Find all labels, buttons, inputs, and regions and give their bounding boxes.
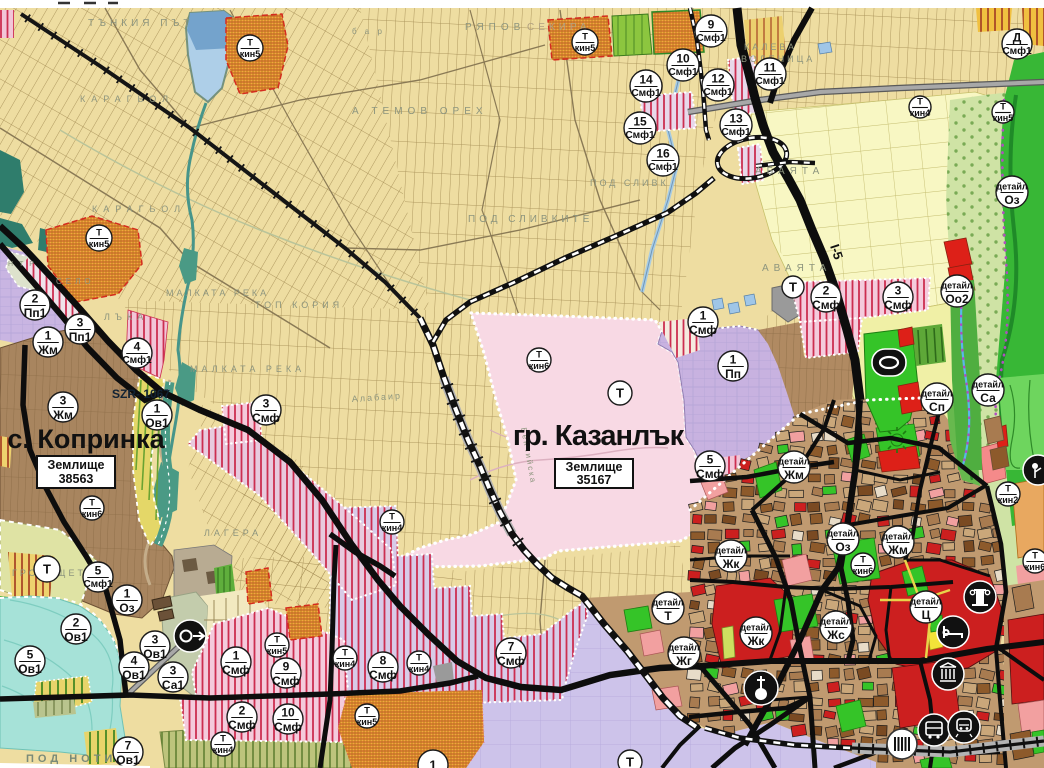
- svg-text:Смф: Смф: [252, 411, 280, 425]
- svg-text:38563: 38563: [59, 472, 94, 486]
- svg-text:кин4: кин4: [910, 108, 930, 118]
- svg-text:3: 3: [60, 394, 67, 408]
- svg-text:детайл: детайл: [910, 597, 942, 607]
- svg-text:Смф: Смф: [696, 467, 724, 481]
- svg-text:1: 1: [700, 309, 707, 323]
- svg-text:Т: Т: [89, 498, 95, 509]
- svg-text:1: 1: [154, 402, 161, 416]
- svg-text:ЛЪКА: ЛЪКА: [104, 312, 148, 322]
- svg-text:б а р: б а р: [352, 27, 385, 36]
- svg-text:кин4: кин4: [382, 523, 402, 533]
- svg-text:Т: Т: [220, 734, 226, 745]
- svg-text:2: 2: [32, 292, 39, 306]
- svg-text:кин5: кин5: [357, 717, 377, 727]
- svg-text:Смф1: Смф1: [696, 32, 726, 44]
- svg-text:2: 2: [823, 284, 830, 298]
- svg-text:10: 10: [676, 52, 690, 66]
- svg-text:детайл: детайл: [996, 182, 1028, 192]
- svg-text:Т: Т: [1032, 551, 1038, 562]
- svg-text:Т: Т: [860, 555, 866, 566]
- svg-text:Ов1: Ов1: [64, 630, 88, 644]
- svg-text:кин6: кин6: [853, 566, 873, 576]
- svg-text:Ов1: Ов1: [18, 662, 42, 676]
- svg-text:Д: Д: [1013, 31, 1022, 45]
- svg-text:Оз: Оз: [119, 601, 134, 615]
- svg-text:Т: Т: [1005, 484, 1011, 495]
- svg-text:Т: Т: [582, 32, 588, 43]
- svg-text:кин5: кин5: [267, 646, 287, 656]
- svg-text:13: 13: [729, 112, 743, 126]
- svg-text:кин5: кин5: [993, 113, 1013, 123]
- svg-text:Жм: Жм: [783, 468, 804, 482]
- svg-text:Смф1: Смф1: [83, 578, 113, 590]
- svg-text:14: 14: [639, 73, 653, 87]
- svg-text:Смф: Смф: [497, 654, 525, 668]
- svg-text:Смф: Смф: [272, 674, 300, 688]
- svg-text:ПОД СЛИВК: ПОД СЛИВК: [590, 178, 669, 188]
- svg-text:КАРАГЬОЛ: КАРАГЬОЛ: [80, 94, 174, 104]
- svg-text:ТОП КОРИЯ: ТОП КОРИЯ: [255, 300, 343, 310]
- svg-text:А ТЕМОВ ОРЕХ: А ТЕМОВ ОРЕХ: [352, 106, 488, 117]
- svg-text:Смф1: Смф1: [122, 354, 152, 366]
- svg-text:Смф1: Смф1: [721, 126, 751, 138]
- svg-text:кин6: кин6: [529, 361, 549, 371]
- svg-text:Пп: Пп: [725, 367, 741, 381]
- svg-text:Т: Т: [342, 648, 348, 659]
- svg-text:Т: Т: [247, 38, 253, 49]
- svg-text:кин5: кин5: [240, 49, 260, 59]
- svg-text:Жм: Жм: [887, 543, 908, 557]
- svg-text:кин4: кин4: [409, 664, 429, 674]
- svg-text:Жк: Жк: [747, 634, 766, 648]
- svg-text:Т: Т: [1000, 102, 1006, 113]
- svg-text:КАРАГЬОЛ: КАРАГЬОЛ: [92, 204, 186, 214]
- svg-text:Т: Т: [626, 755, 634, 768]
- svg-text:МАЛКАТА РЕКА: МАЛКАТА РЕКА: [166, 288, 269, 298]
- svg-text:Жм: Жм: [52, 408, 73, 422]
- svg-text:детайл: детайл: [972, 380, 1004, 390]
- svg-text:5: 5: [707, 453, 714, 467]
- svg-text:детайл: детайл: [820, 617, 852, 627]
- svg-text:Т: Т: [96, 228, 102, 239]
- svg-text:Смф: Смф: [228, 718, 256, 732]
- svg-text:Т: Т: [364, 706, 370, 717]
- svg-text:Смф: Смф: [369, 668, 397, 682]
- svg-text:3: 3: [263, 397, 270, 411]
- svg-text:11: 11: [764, 61, 777, 75]
- svg-text:4: 4: [134, 340, 141, 354]
- svg-text:Смф1: Смф1: [755, 75, 785, 87]
- svg-text:Смф1: Смф1: [648, 161, 678, 173]
- svg-text:Землище: Землище: [48, 458, 105, 472]
- svg-text:9: 9: [708, 18, 715, 32]
- svg-text:Жк: Жк: [722, 557, 741, 571]
- svg-text:детайл: детайл: [921, 389, 953, 399]
- svg-text:кин6: кин6: [1025, 562, 1044, 572]
- svg-text:детайл: детайл: [715, 546, 747, 556]
- svg-text:СЕЛО: СЕЛО: [56, 277, 95, 286]
- svg-text:гр. Казанлък: гр. Казанлък: [513, 420, 685, 452]
- svg-text:Смф: Смф: [274, 720, 302, 734]
- svg-text:Смф: Смф: [222, 663, 250, 677]
- svg-text:1: 1: [45, 329, 52, 343]
- svg-text:детайл: детайл: [652, 598, 684, 608]
- svg-text:Смф1: Смф1: [1002, 45, 1032, 57]
- svg-text:12: 12: [711, 72, 725, 86]
- svg-text:Смф1: Смф1: [703, 86, 733, 98]
- svg-text:8: 8: [380, 654, 387, 668]
- svg-text:3: 3: [152, 633, 159, 647]
- svg-text:2: 2: [239, 704, 246, 718]
- svg-text:Т: Т: [664, 609, 672, 623]
- svg-text:кин6: кин6: [82, 509, 102, 519]
- svg-text:РЯПОВ: РЯПОВ: [465, 22, 525, 33]
- svg-text:детайл: детайл: [778, 457, 810, 467]
- svg-text:кин4: кин4: [213, 745, 233, 755]
- svg-text:кин2: кин2: [998, 495, 1018, 505]
- svg-text:1: 1: [233, 649, 240, 663]
- svg-text:7: 7: [508, 640, 515, 654]
- svg-text:Смф1: Смф1: [668, 66, 698, 78]
- svg-text:с. Копринка: с. Копринка: [7, 424, 165, 454]
- svg-text:15: 15: [633, 115, 647, 129]
- svg-text:Смф: Смф: [689, 323, 717, 337]
- svg-text:3: 3: [895, 284, 902, 298]
- svg-text:Землище: Землище: [566, 460, 623, 474]
- svg-text:Смф: Смф: [812, 298, 840, 312]
- svg-text:Т: Т: [616, 386, 624, 401]
- svg-text:5: 5: [95, 564, 102, 578]
- svg-text:Ов1: Ов1: [122, 668, 146, 682]
- svg-text:Т: Т: [416, 653, 422, 664]
- svg-text:3: 3: [77, 316, 84, 330]
- svg-text:Т: Т: [43, 562, 51, 577]
- svg-text:Са1: Са1: [162, 678, 184, 692]
- svg-text:Т: Т: [917, 97, 923, 108]
- svg-text:детайл: детайл: [740, 623, 772, 633]
- svg-text:Оо2: Оо2: [945, 292, 969, 306]
- svg-text:ТЪНКИЯ ПЪТ: ТЪНКИЯ ПЪТ: [88, 18, 193, 29]
- svg-text:35167: 35167: [577, 473, 612, 487]
- svg-text:детайл: детайл: [941, 281, 973, 291]
- svg-text:Ц: Ц: [922, 608, 931, 622]
- svg-text:Пп1: Пп1: [69, 330, 92, 344]
- svg-text:Пп1: Пп1: [24, 306, 47, 320]
- svg-text:SZR- 1067: SZR- 1067: [112, 387, 170, 401]
- svg-text:Т: Т: [536, 350, 542, 361]
- svg-text:1: 1: [124, 587, 131, 601]
- svg-text:кин4: кин4: [335, 659, 355, 669]
- svg-text:КАЛЕВА: КАЛЕВА: [744, 42, 797, 52]
- svg-text:4: 4: [131, 654, 138, 668]
- svg-text:Смф: Смф: [884, 298, 912, 312]
- svg-text:детайл: детайл: [882, 532, 914, 542]
- svg-text:детайл: детайл: [827, 529, 859, 539]
- svg-text:Смф1: Смф1: [631, 87, 661, 99]
- svg-text:Оз: Оз: [835, 540, 850, 554]
- svg-text:ЛАГЕРА: ЛАГЕРА: [204, 528, 262, 538]
- svg-text:3: 3: [170, 664, 177, 678]
- svg-text:ПОД НОТИ: ПОД НОТИ: [26, 753, 116, 765]
- svg-text:Сп: Сп: [929, 400, 945, 414]
- svg-text:7: 7: [125, 739, 132, 753]
- svg-text:Оз: Оз: [1004, 193, 1019, 207]
- svg-text:детайл: детайл: [668, 643, 700, 653]
- svg-text:кин5: кин5: [575, 43, 595, 53]
- svg-text:9: 9: [283, 660, 290, 674]
- svg-text:Т: Т: [789, 280, 797, 295]
- svg-text:Жс: Жс: [826, 628, 845, 642]
- svg-text:Ов1: Ов1: [145, 416, 169, 430]
- svg-text:Жг: Жг: [675, 654, 692, 668]
- svg-text:2: 2: [73, 616, 80, 630]
- svg-text:1: 1: [429, 758, 436, 768]
- svg-text:Т: Т: [274, 635, 280, 646]
- svg-text:АВАЯТА: АВАЯТА: [762, 263, 831, 274]
- svg-text:кин5: кин5: [89, 239, 109, 249]
- svg-text:Т: Т: [389, 512, 395, 523]
- svg-text:Смф1: Смф1: [625, 129, 655, 141]
- svg-text:Жм: Жм: [37, 343, 58, 357]
- svg-text:АБАЯТА: АБАЯТА: [755, 166, 824, 177]
- svg-text:МАЛКАТА РЕКА: МАЛКАТА РЕКА: [190, 364, 305, 374]
- svg-text:ПОД СЛИВКИТЕ: ПОД СЛИВКИТЕ: [468, 214, 593, 225]
- svg-text:16: 16: [656, 147, 670, 161]
- svg-text:10: 10: [281, 706, 295, 720]
- svg-text:Ов1: Ов1: [116, 753, 140, 767]
- svg-text:5: 5: [27, 648, 34, 662]
- svg-text:Са: Са: [980, 391, 996, 405]
- svg-text:1: 1: [730, 353, 737, 367]
- svg-text:Н Т Р: Н Т Р: [8, 261, 36, 268]
